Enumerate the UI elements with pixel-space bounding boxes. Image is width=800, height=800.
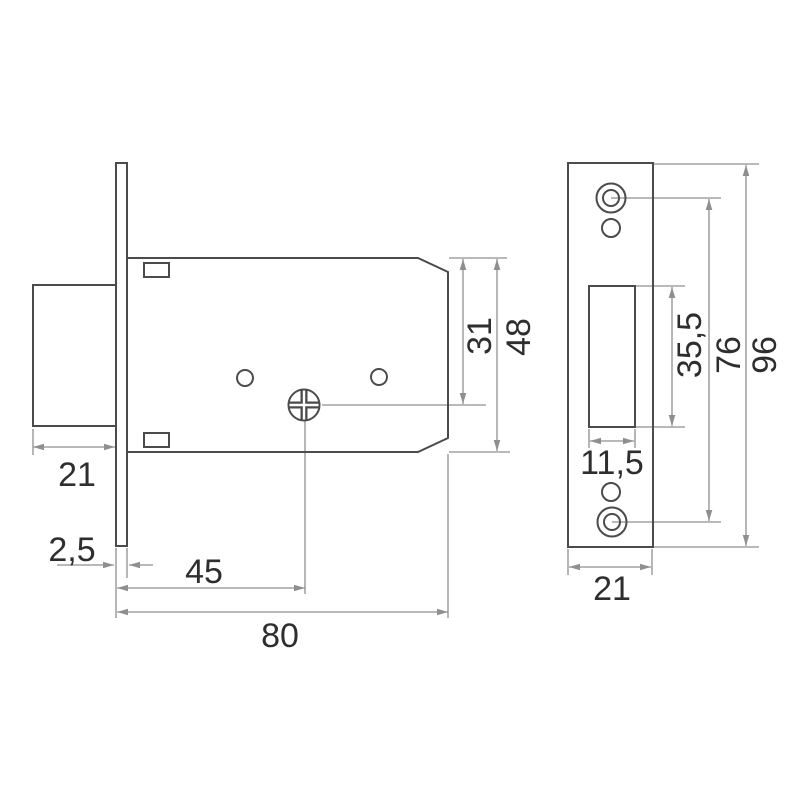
case-hole-left xyxy=(237,370,253,386)
case-hole-right xyxy=(371,369,387,385)
pin-hole-bottom xyxy=(602,483,620,501)
dim-label-case-height: 48 xyxy=(500,318,538,356)
dim-label-backset: 45 xyxy=(185,553,223,591)
lock-body-dimension-lines xyxy=(33,258,510,618)
strike-plate xyxy=(568,163,653,547)
bolt-cutout-slot xyxy=(589,286,635,427)
deadbolt xyxy=(33,285,116,426)
fixing-tab-top xyxy=(144,263,169,277)
dim-label-faceplate-thickness: 2,5 xyxy=(48,531,95,569)
dim-label-case-depth: 80 xyxy=(261,617,299,655)
fixing-tab-bottom xyxy=(144,433,169,447)
dim-label-plate-height: 96 xyxy=(746,336,784,374)
technical-drawing-canvas: 21 2,5 45 80 31 48 xyxy=(0,0,800,800)
dim-label-cutout-width: 11,5 xyxy=(580,444,644,482)
pin-hole-top xyxy=(602,219,620,237)
dim-label-bolt-width: 21 xyxy=(58,456,96,494)
dim-label-plate-width: 21 xyxy=(593,570,631,608)
spindle-cross-highlight xyxy=(290,391,319,420)
lock-body-dimension-labels: 21 2,5 45 80 31 48 xyxy=(48,317,538,655)
strike-plate-view: 35,5 76 96 11,5 21 xyxy=(568,163,784,608)
dim-label-cutout-height: 35,5 xyxy=(671,312,709,378)
lock-case xyxy=(127,258,448,452)
forend-faceplate xyxy=(116,163,127,546)
dim-label-screw-spacing: 76 xyxy=(710,336,748,374)
lock-body-view: 21 2,5 45 80 31 48 xyxy=(33,163,538,655)
dim-label-top-to-spindle: 31 xyxy=(461,317,499,355)
strike-plate-dimension-labels: 35,5 76 96 11,5 21 xyxy=(580,312,784,608)
